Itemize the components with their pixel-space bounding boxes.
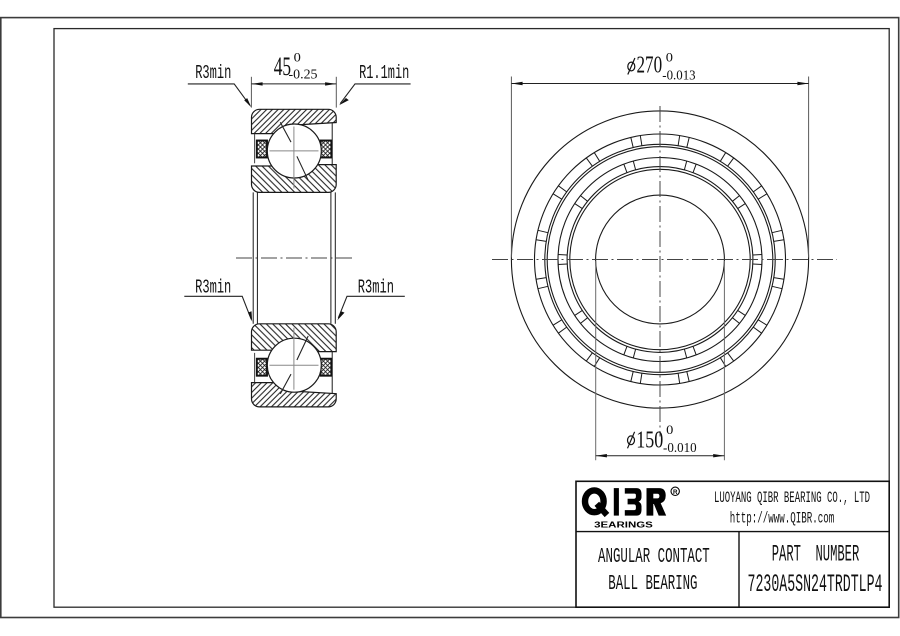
svg-text:R3min: R3min — [195, 62, 231, 84]
svg-text:0: 0 — [666, 422, 673, 437]
svg-text:270: 270 — [637, 53, 663, 79]
svg-text:ANGULAR CONTACT: ANGULAR CONTACT — [598, 545, 710, 569]
svg-text:-0.010: -0.010 — [663, 440, 697, 455]
svg-text:0: 0 — [666, 49, 673, 64]
svg-text:R1.1min: R1.1min — [359, 62, 409, 84]
svg-text:R: R — [673, 489, 678, 496]
svg-text:http://www.QIBR.com: http://www.QIBR.com — [730, 509, 835, 527]
svg-text:LUOYANG QIBR BEARING CO., LTD: LUOYANG QIBR BEARING CO., LTD — [714, 489, 870, 507]
svg-text:150: 150 — [636, 427, 663, 453]
svg-text:7230A5SN24TRDTLP4: 7230A5SN24TRDTLP4 — [748, 570, 883, 599]
svg-text:PART NUMBER: PART NUMBER — [772, 541, 860, 567]
svg-text:3EARINGS: 3EARINGS — [594, 519, 653, 529]
svg-text:R3min: R3min — [358, 277, 394, 299]
svg-text:-0.013: -0.013 — [662, 68, 696, 83]
svg-text:BALL BEARING: BALL BEARING — [608, 572, 697, 596]
svg-text:R3min: R3min — [195, 277, 231, 299]
svg-text:0: 0 — [294, 49, 301, 64]
svg-text:-0.25: -0.25 — [289, 67, 318, 82]
